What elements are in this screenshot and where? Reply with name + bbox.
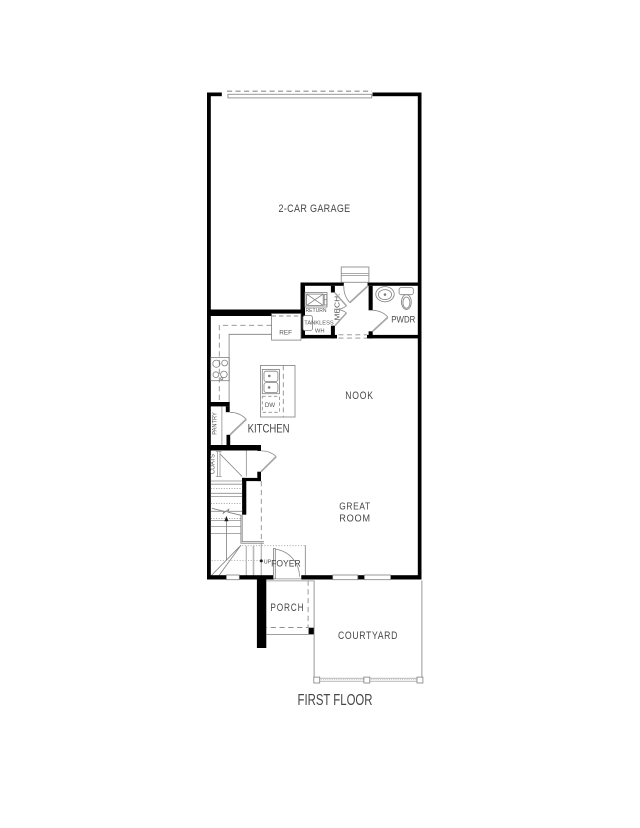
svg-text:REF: REF <box>279 330 292 337</box>
svg-text:COURTYARD: COURTYARD <box>338 630 398 642</box>
svg-text:COATS: COATS <box>209 453 216 474</box>
svg-text:NOOK: NOOK <box>345 390 374 402</box>
svg-text:2-CAR GARAGE: 2-CAR GARAGE <box>279 203 351 215</box>
svg-text:KITCHEN: KITCHEN <box>248 421 290 435</box>
svg-text:FOYER: FOYER <box>271 558 301 568</box>
svg-text:PWDR: PWDR <box>391 313 415 324</box>
svg-text:GREAT: GREAT <box>339 501 371 512</box>
svg-text:PANTRY: PANTRY <box>212 412 219 435</box>
svg-text:FIRST FLOOR: FIRST FLOOR <box>298 692 373 709</box>
svg-text:RETURN: RETURN <box>306 308 327 314</box>
svg-text:ROOM: ROOM <box>339 513 371 524</box>
svg-text:PORCH: PORCH <box>270 602 304 614</box>
svg-text:WH: WH <box>315 329 325 335</box>
svg-text:TANKLESS: TANKLESS <box>304 321 334 327</box>
svg-text:DW: DW <box>265 402 275 409</box>
